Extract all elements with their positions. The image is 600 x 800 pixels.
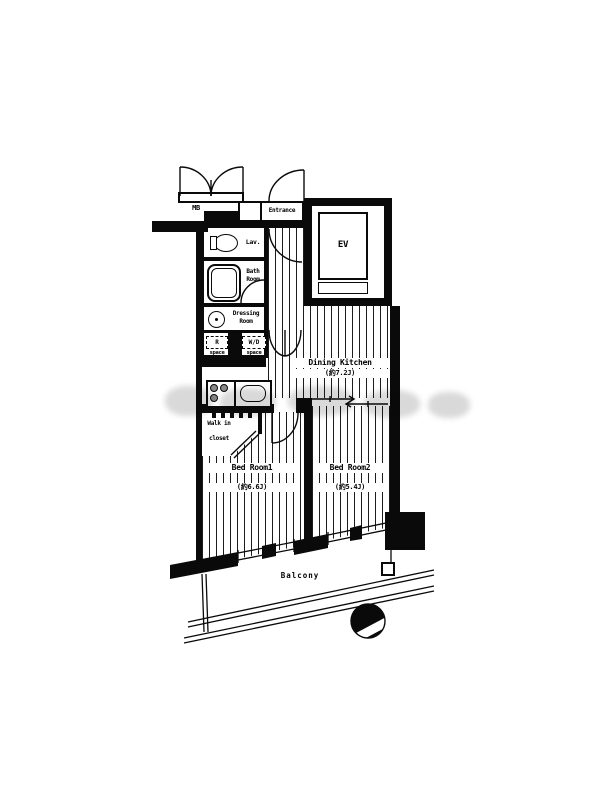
wall — [304, 398, 312, 548]
wd-space-sub-label: space — [242, 350, 266, 357]
wall — [196, 221, 204, 367]
mb-label: MB — [182, 204, 210, 213]
watermark — [428, 392, 470, 418]
dining-kitchen-floor — [268, 306, 390, 398]
dining-kitchen-label: Dining Kitchen — [292, 358, 388, 368]
elevator-door-sill — [318, 282, 368, 294]
wall — [204, 257, 264, 261]
door-arc — [241, 280, 264, 303]
entrance-door-arc — [269, 170, 304, 201]
r-space-sub-label: space — [206, 350, 228, 357]
balcony-drain-box — [381, 562, 395, 576]
ev-label: EV — [318, 240, 368, 251]
burner-icon — [210, 384, 218, 392]
watermark — [288, 386, 354, 416]
dressing-room-label: Dressing Room — [228, 310, 264, 325]
compass-icon — [346, 604, 400, 647]
corridor-floor — [268, 228, 304, 308]
wall — [204, 303, 264, 307]
lav-label: Lav. — [240, 238, 266, 246]
walkin-line1: Walk in — [207, 420, 230, 427]
watermark — [220, 388, 276, 416]
r-space-label: R — [215, 339, 219, 346]
walkin-closet-label: Walk in closet — [200, 420, 238, 443]
walkin-line2: closet — [209, 435, 229, 442]
bathtub-inner-icon — [211, 268, 237, 298]
washer-dryer-space: W/D — [242, 336, 266, 349]
bedroom2-size: (約5.4J) — [314, 483, 386, 492]
balcony-label: Balcony — [268, 571, 332, 580]
wall — [204, 222, 306, 228]
pillar — [385, 512, 425, 550]
toilet-tank-icon — [210, 236, 217, 250]
entrance-label: Entrance — [260, 207, 304, 215]
bedroom2-floor — [312, 406, 390, 546]
wd-space-label: W/D — [249, 339, 260, 346]
meter-box — [178, 192, 244, 203]
bath-room-label: Bath Room — [240, 268, 266, 283]
balcony-rail — [184, 550, 434, 643]
refrigerator-space: R — [206, 336, 228, 349]
bedroom1-size: (約6.6J) — [208, 483, 296, 492]
bedroom1-label: Bed Room1 — [208, 463, 296, 473]
bedroom2-label: Bed Room2 — [314, 463, 386, 473]
entry-porch — [238, 201, 262, 222]
toilet-icon — [214, 234, 238, 252]
floor-plan: MB Entrance Lav. Bath Room Dressing Room… — [0, 0, 600, 800]
dining-kitchen-size: (約7.2J) — [292, 369, 388, 378]
basin-drain-icon — [215, 318, 218, 321]
watermark — [364, 390, 420, 418]
watermark — [165, 386, 213, 416]
